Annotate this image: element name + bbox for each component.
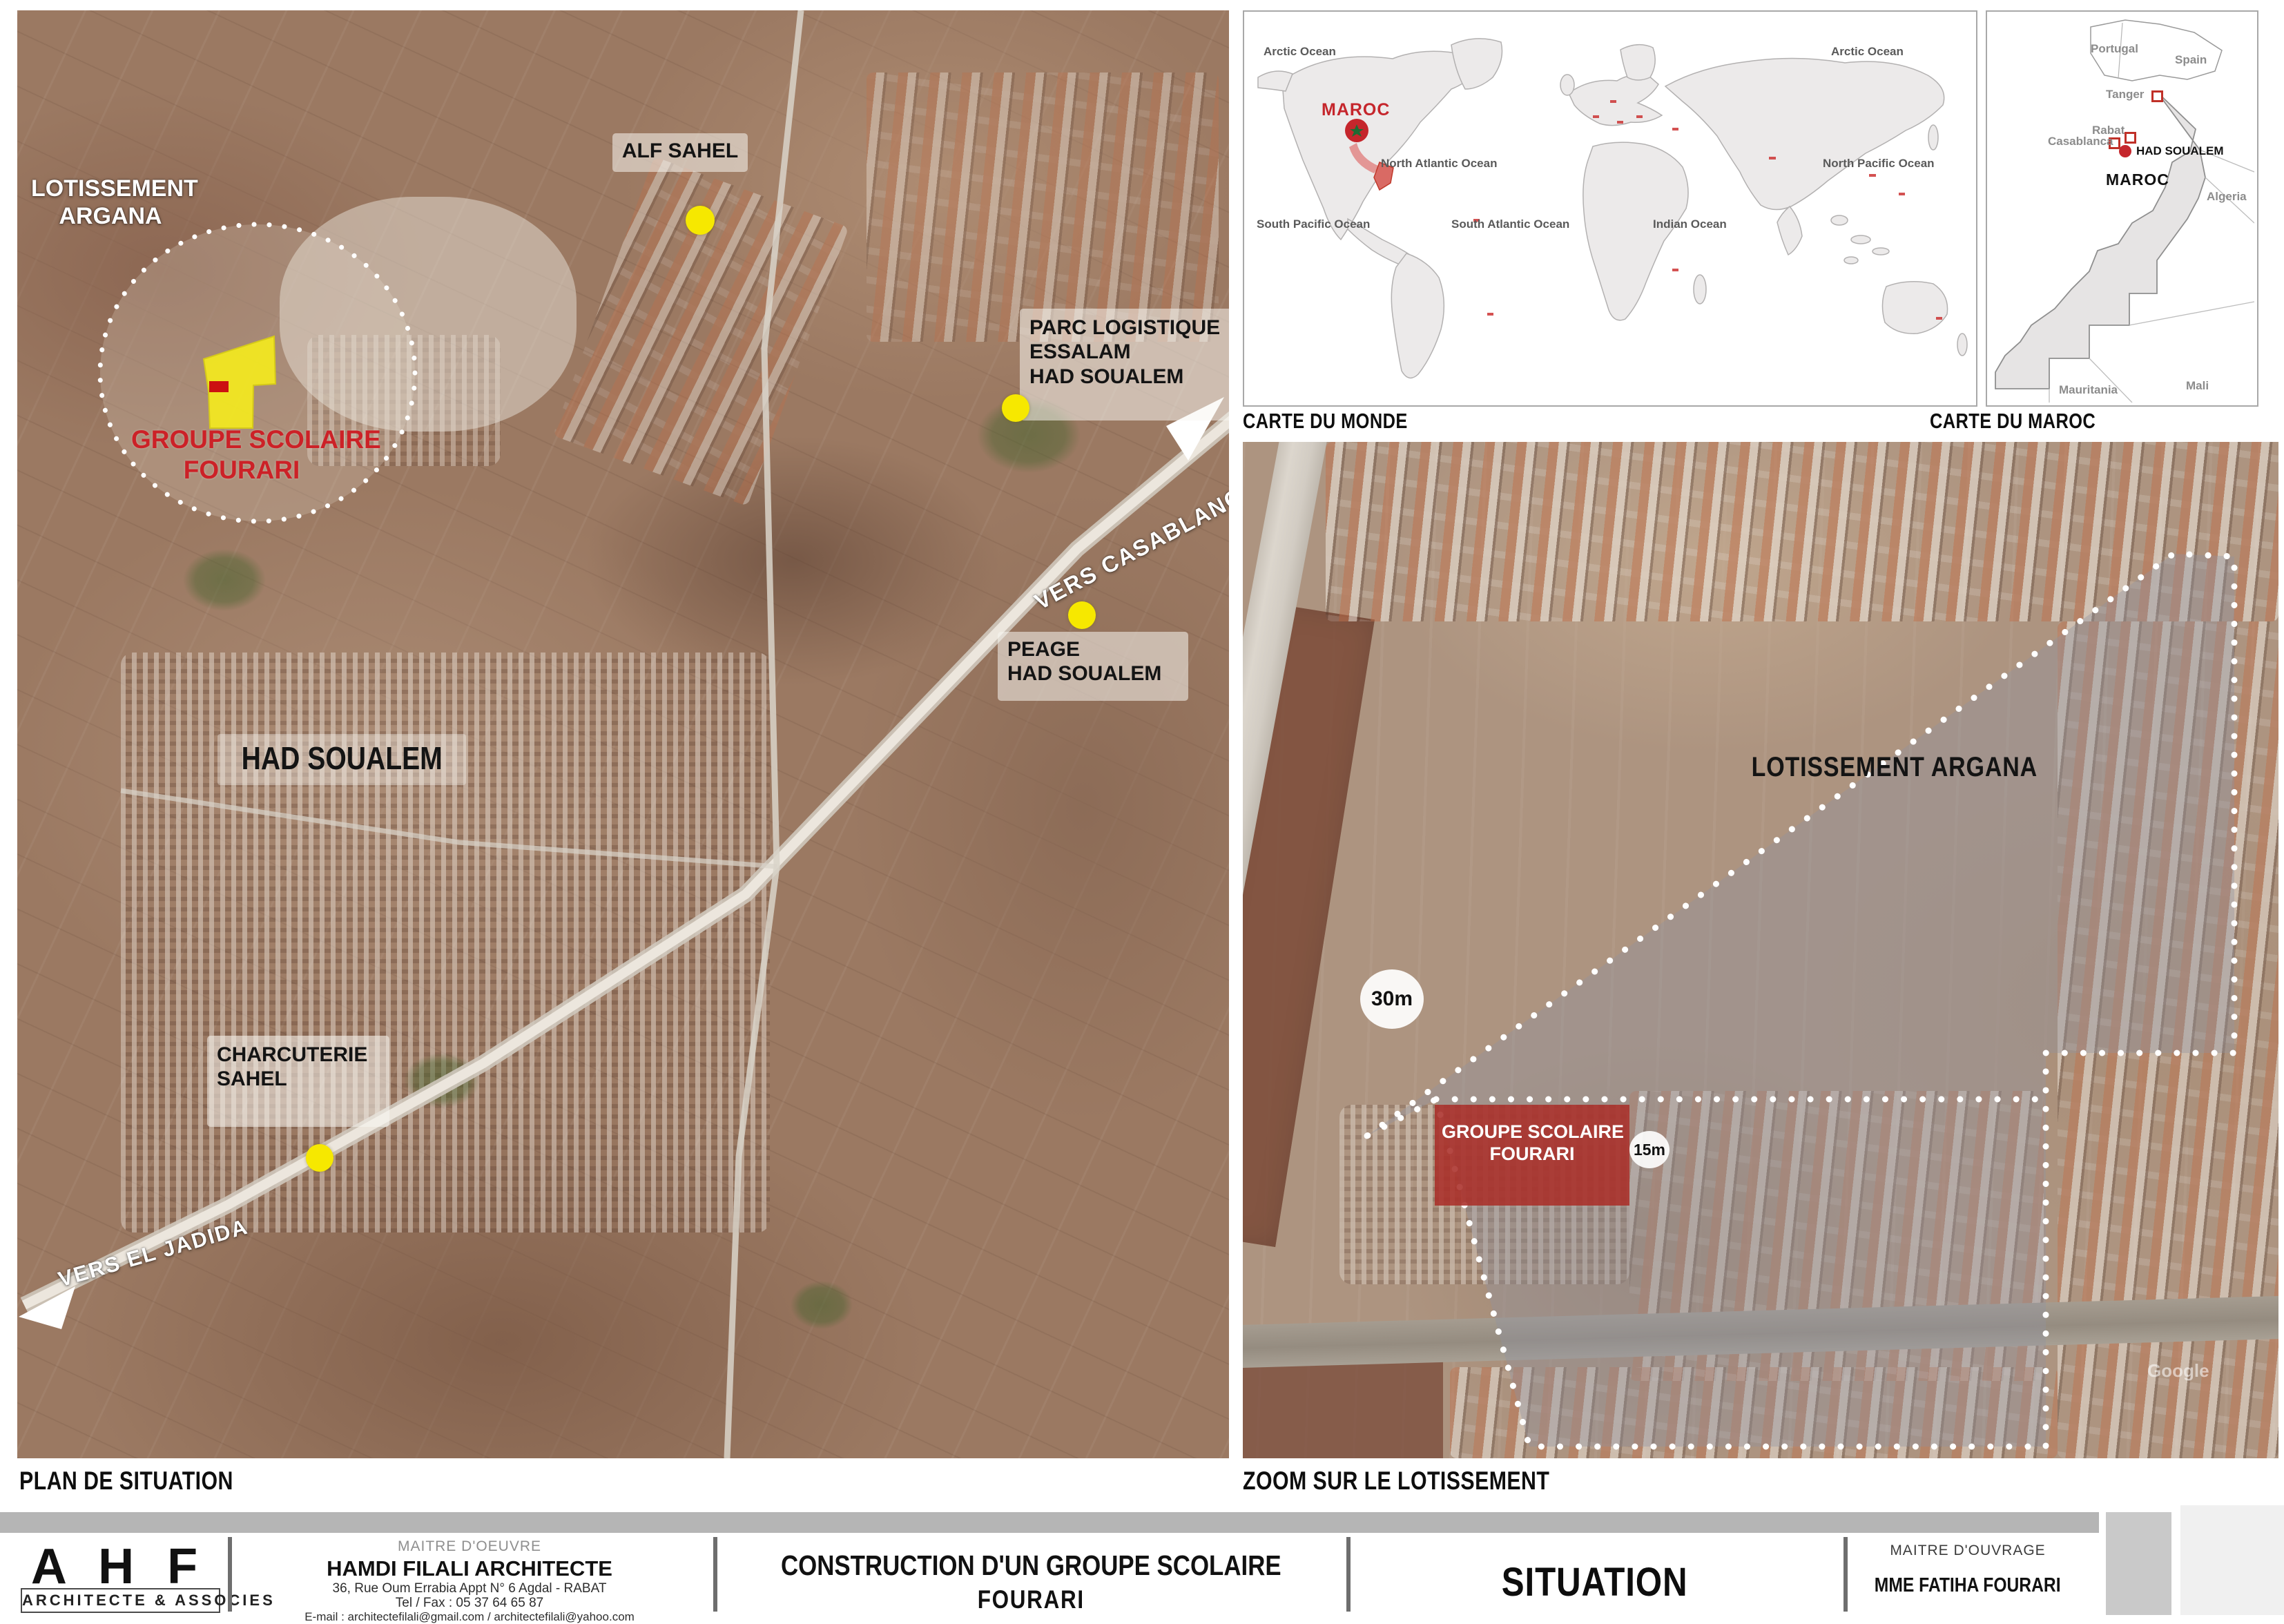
- caption-zoom-lotissement: ZOOM SUR LE LOTISSEMENT: [1243, 1467, 1549, 1496]
- maroc-label-spain: Spain: [2175, 53, 2207, 67]
- carte-du-maroc-map: Portugal Spain Tanger Rabat Casablanca H…: [1986, 10, 2258, 407]
- label-lotissement-argana: LOTISSEMENT ARGANA: [31, 175, 190, 230]
- maroc-label-mali: Mali: [2186, 379, 2209, 393]
- zoom-label-school: GROUPE SCOLAIRE FOURARI: [1442, 1121, 1623, 1166]
- architectural-situation-sheet: { "plan": { "caption": "PLAN DE SITUATIO…: [0, 0, 2284, 1615]
- ocean-south-pacific: South Pacific Ocean: [1257, 217, 1370, 231]
- divider-3: [1346, 1537, 1351, 1612]
- maroc-label-mauritania: Mauritania: [2059, 383, 2118, 397]
- maroc-tanger-marker: [2151, 90, 2163, 102]
- label-had-soualem-city: HAD SOUALEM: [217, 734, 466, 785]
- label-peage-had-soualem: PEAGE HAD SOUALEM: [998, 632, 1188, 701]
- label-charcuterie-sahel: CHARCUTERIE SAHEL: [207, 1036, 389, 1127]
- title-block-strip-right: [2180, 1505, 2284, 1615]
- marker-charcuterie: [306, 1144, 333, 1172]
- dim-badge-30m: 30m: [1360, 969, 1424, 1029]
- moe-email: E-mail : architectefilali@gmail.com / ar…: [249, 1610, 690, 1624]
- label-groupe-scolaire-fourari: GROUPE SCOLAIRE FOURARI: [131, 425, 352, 485]
- marker-parc-logistique: [1002, 394, 1029, 422]
- marker-alf-sahel: [686, 206, 715, 235]
- dim-badge-15m: 15m: [1629, 1131, 1670, 1168]
- ocean-north-pacific: North Pacific Ocean: [1823, 157, 1935, 171]
- label-parc-logistique: PARC LOGISTIQUE ESSALAM HAD SOUALEM: [1020, 309, 1229, 420]
- ocean-indian: Indian Ocean: [1653, 217, 1727, 231]
- ahf-logo: A H F: [21, 1538, 217, 1595]
- ocean-north-atlantic: North Atlantic Ocean: [1381, 157, 1497, 171]
- maroc-label-had-soualem: HAD SOUALEM: [2136, 144, 2224, 158]
- ocean-arctic-right: Arctic Ocean: [1831, 45, 1904, 59]
- world-continents: [1244, 12, 1973, 403]
- zoom-lotissement-map: LOTISSEMENT ARGANA GROUPE SCOLAIRE FOURA…: [1243, 442, 2278, 1458]
- divider-1: [228, 1537, 232, 1612]
- zoom-label-lotissement-argana: LOTISSEMENT ARGANA: [1726, 751, 2063, 784]
- moe-title: MAITRE D'OEUVRE: [249, 1538, 690, 1555]
- maroc-outline: [1987, 12, 2254, 403]
- plan-de-situation-map: LOTISSEMENT ARGANA GROUPE SCOLAIRE FOURA…: [17, 10, 1229, 1458]
- maroc-label-casablanca: Casablanca: [2048, 135, 2113, 148]
- maroc-label-algeria: Algeria: [2207, 190, 2247, 204]
- ocean-arctic-left: Arctic Ocean: [1264, 45, 1336, 59]
- maroc-had-soualem-dot: [2119, 145, 2131, 157]
- project-title-line1: CONSTRUCTION D'UN GROUPE SCOLAIRE: [734, 1549, 1328, 1582]
- title-block-gray-band: [0, 1512, 2099, 1533]
- caption-carte-du-monde: CARTE DU MONDE: [1243, 409, 1408, 434]
- divider-4: [1843, 1537, 1848, 1612]
- zoom-boundary: [1243, 442, 2278, 1458]
- sheet-title: SITUATION: [1367, 1559, 1823, 1605]
- maroc-label-tanger: Tanger: [2106, 88, 2144, 101]
- caption-carte-du-maroc: CARTE DU MAROC: [1930, 409, 2096, 434]
- maroc-rabat-marker: [2125, 132, 2136, 144]
- label-alf-sahel: ALF SAHEL: [612, 133, 748, 172]
- ocean-south-atlantic: South Atlantic Ocean: [1451, 217, 1569, 231]
- caption-plan-de-situation: PLAN DE SITUATION: [19, 1467, 233, 1496]
- ahf-logo-subtitle: ARCHITECTE & ASSOCIES: [21, 1588, 220, 1613]
- maroc-label-maroc: MAROC: [2106, 171, 2169, 189]
- divider-2: [713, 1537, 717, 1612]
- carte-du-monde-map: MAROC Arctic Ocean Arctic Ocean North At…: [1243, 10, 1977, 407]
- marker-peage: [1068, 601, 1096, 629]
- google-watermark: Google: [2147, 1360, 2209, 1382]
- moa-name: MME FATIHA FOURARI: [1857, 1574, 2078, 1597]
- school-site-red-parcel: [209, 381, 229, 392]
- world-maroc-label: MAROC: [1322, 100, 1390, 121]
- moe-tel: Tel / Fax : 05 37 64 65 87: [249, 1596, 690, 1611]
- project-title-line2: FOURARI: [734, 1585, 1328, 1614]
- moa-title: MAITRE D'OUVRAGE: [1857, 1543, 2078, 1559]
- moe-name: HAMDI FILALI ARCHITECTE: [249, 1556, 690, 1581]
- moe-address: 36, Rue Oum Errabia Appt N° 6 Agdal - RA…: [249, 1581, 690, 1596]
- maroc-label-portugal: Portugal: [2091, 42, 2138, 56]
- title-block-strip-mid: [2106, 1512, 2171, 1615]
